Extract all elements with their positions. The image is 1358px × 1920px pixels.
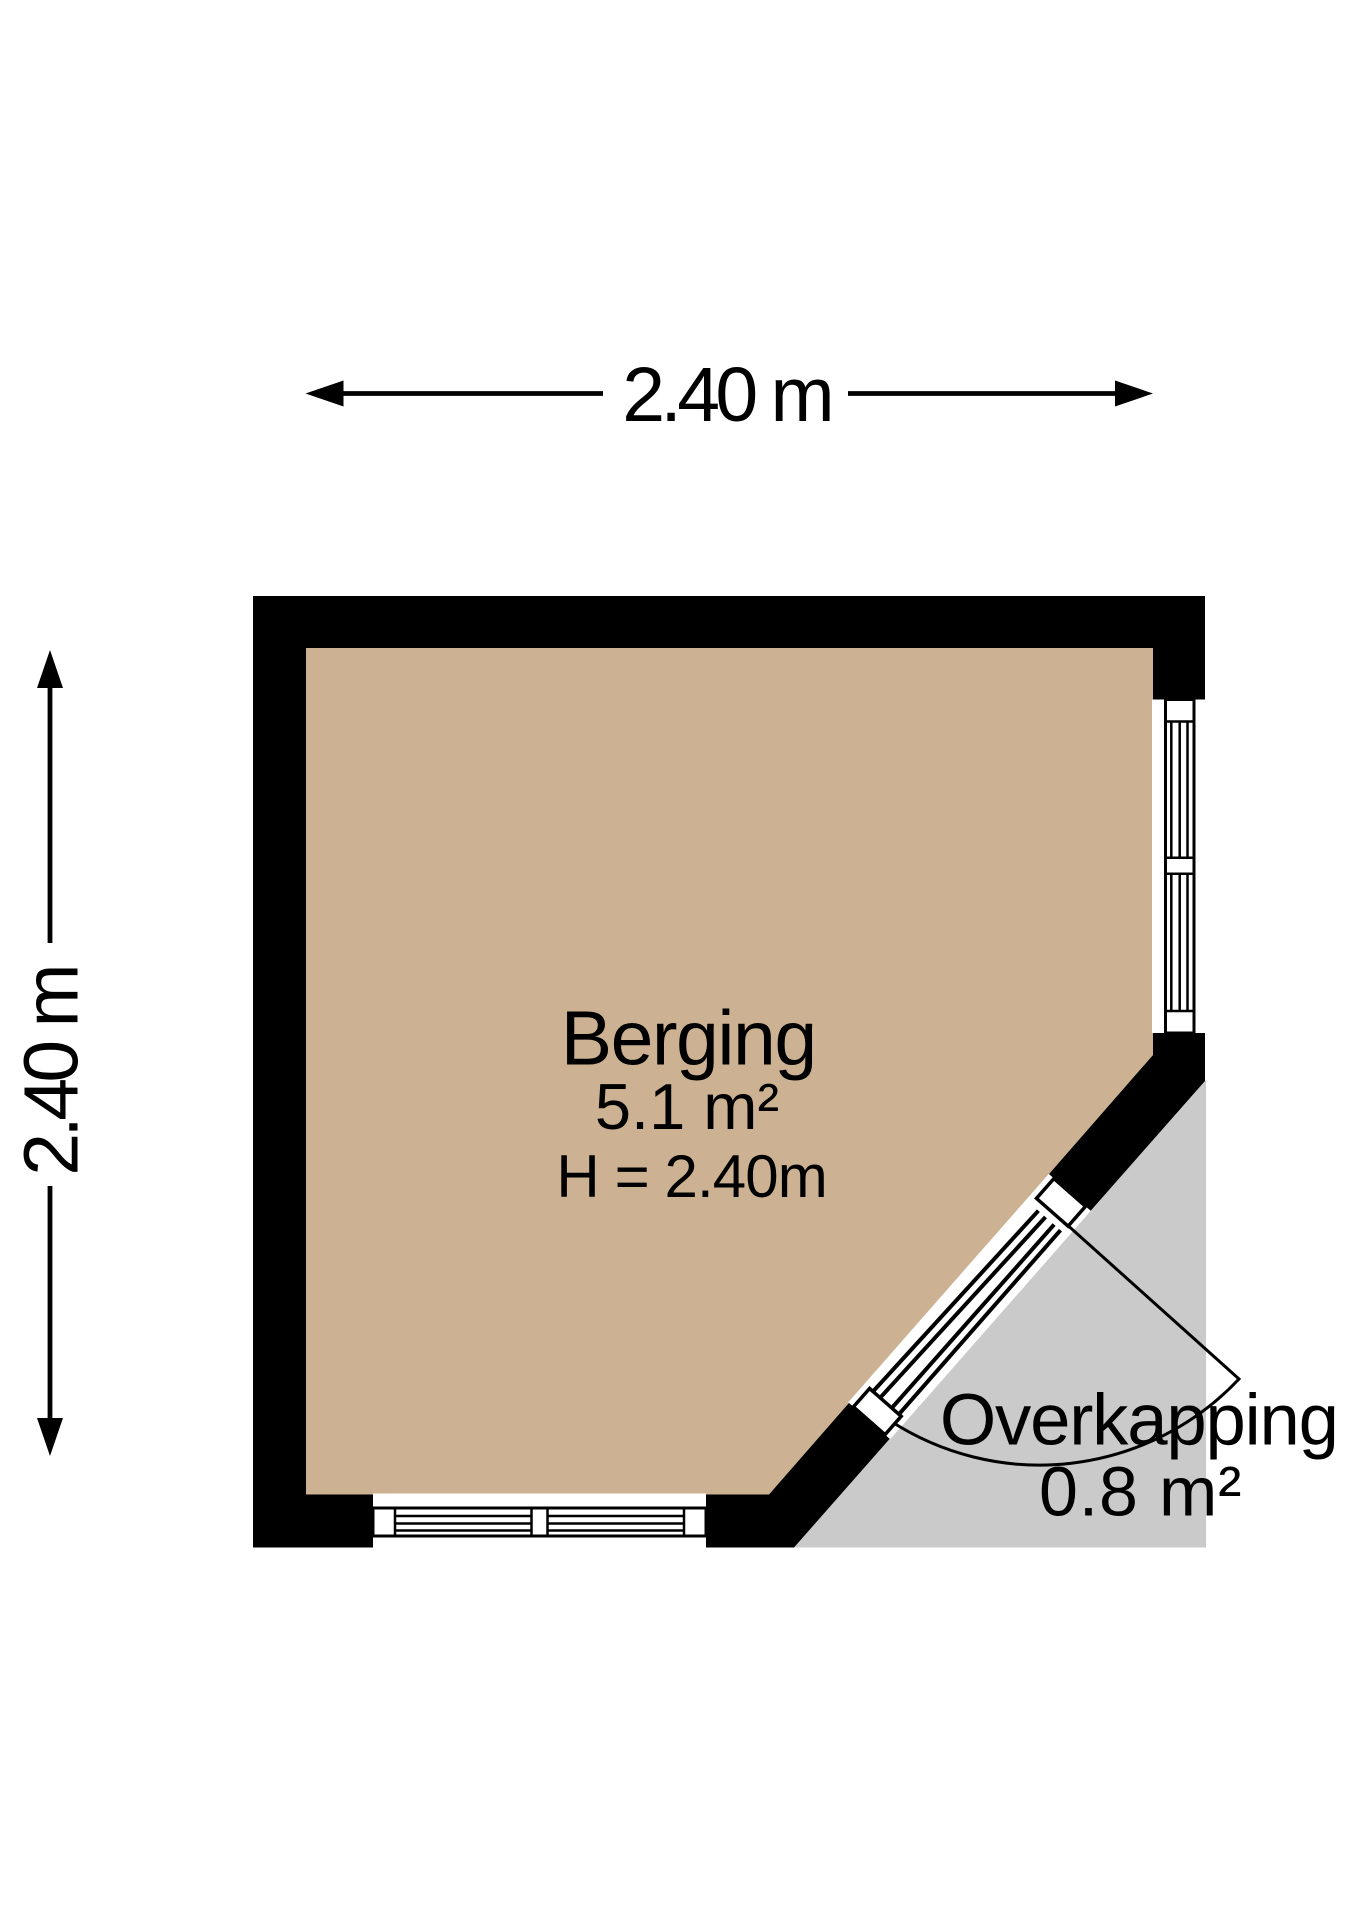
svg-text:0.8 m²: 0.8 m²	[1039, 1453, 1242, 1531]
svg-text:Overkapping: Overkapping	[940, 1380, 1338, 1461]
svg-text:5.1 m²: 5.1 m²	[595, 1070, 779, 1143]
svg-text:2.40 m: 2.40 m	[8, 968, 94, 1176]
svg-text:H = 2.40m: H = 2.40m	[556, 1143, 826, 1210]
svg-text:2.40 m: 2.40 m	[622, 352, 830, 438]
svg-text:Berging: Berging	[561, 996, 816, 1082]
